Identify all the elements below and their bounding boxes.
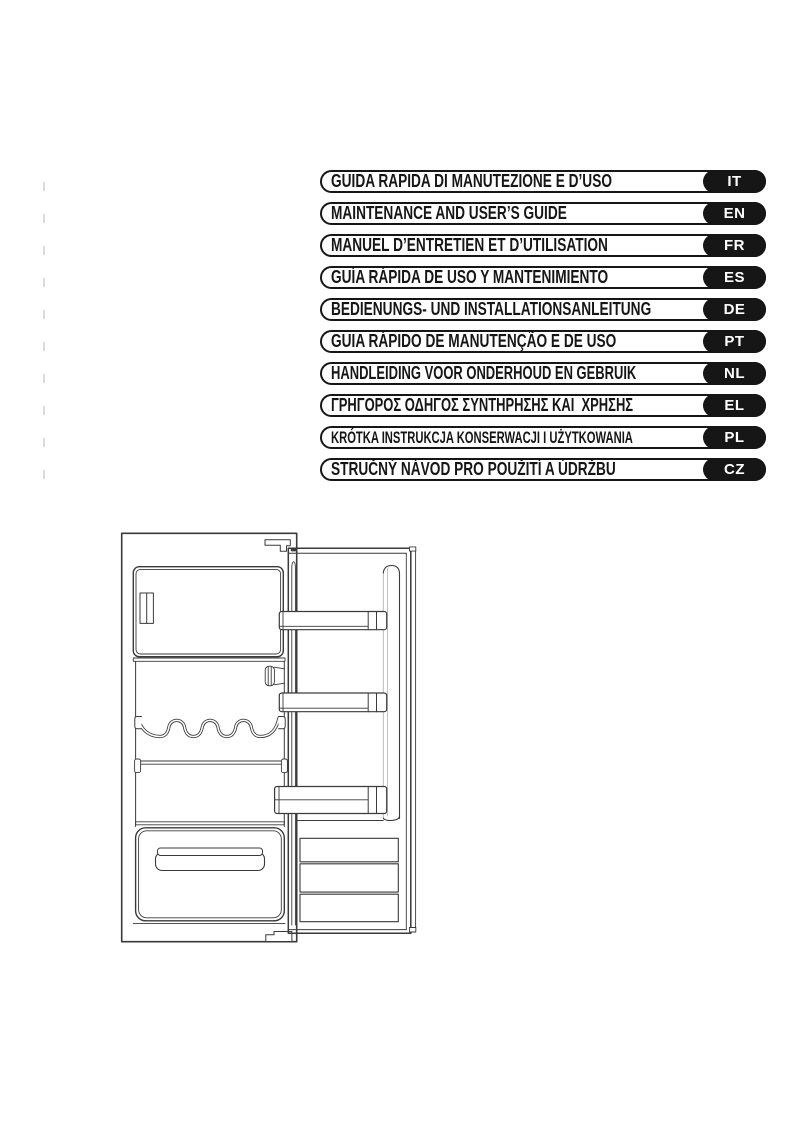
language-badge: DE [703,298,766,321]
banner-title: GUIDA RAPIDA DI MANUTEZIONE E D’USO [331,171,612,192]
banner-row-es: GUÍA RÁPIDA DE USO Y MANTENIMIENTO ES [320,266,766,289]
banner-title: GUIA RÁPIDO DE MANUTENÇÃO E DE USO [331,331,616,352]
language-badge: IT [703,170,766,193]
language-badge: PT [703,330,766,353]
crisper-cover-shelf [136,822,285,825]
middle-shelf [135,759,288,773]
rack-bracket-left [135,717,142,729]
banner-title: MANUEL D’ENTRETIEN ET D’UTILISATION [331,235,608,256]
banner-title: HANDLEIDING VOOR ONDERHOUD EN GEBRUIK [331,363,636,384]
banner-row-cz: STRUČNÝ NÁVOD PRO POUŽITÍ A ÚDRŽBU CZ [320,458,766,481]
banner-title: ΓΡΗΓΟΡΟΣ ΟΔΗΓΟΣ ΣΥΝΤΗΡΗΣΗΣ ΚΑΙ ΧΡΗΣΗΣ [331,395,633,416]
banner-row-fr: MANUEL D’ENTRETIEN ET D’UTILISATION FR [320,234,766,257]
tick-mark [43,182,45,191]
crisper-handle [156,848,265,871]
freezer-handle [140,593,153,623]
language-badge: CZ [703,458,766,481]
banner-title: MAINTENANCE AND USER’S GUIDE [331,203,567,224]
banner-row-de: BEDIENUNGS- UND INSTALLATIONSANLEITUNG D… [320,298,766,321]
language-badge: FR [703,234,766,257]
refrigerator-illustration [100,515,450,965]
banner-title: STRUČNÝ NÁVOD PRO POUŽITÍ A ÚDRŽBU [331,459,616,480]
rack-bracket-right [279,717,286,729]
tick-mark [43,374,45,383]
banner-row-el: ΓΡΗΓΟΡΟΣ ΟΔΗΓΟΣ ΣΥΝΤΗΡΗΣΗΣ ΚΑΙ ΧΡΗΣΗΣ EL [320,394,766,417]
tick-mark [43,342,45,351]
tick-mark [43,406,45,415]
banner-list: GUIDA RAPIDA DI MANUTEZIONE E D’USO IT M… [320,170,766,490]
banner-row-pl: KRÓTKA INSTRUKCJA KONSERWACJI I UŻYTKOWA… [320,426,766,449]
banner-row-en: MAINTENANCE AND USER’S GUIDE EN [320,202,766,225]
crisper-drawer [136,828,285,921]
tick-mark [43,310,45,319]
banner-row-nl: HANDLEIDING VOOR ONDERHOUD EN GEBRUIK NL [320,362,766,385]
freezer-bottom-shelf [133,658,285,661]
thermostat-knob [265,666,284,686]
door-lower-panel [300,838,398,921]
tick-mark [43,214,45,223]
tick-mark [43,246,45,255]
door-edge-strip [410,547,416,932]
tick-mark [43,278,45,287]
fridge-door [275,547,416,933]
language-badge: ES [703,266,766,289]
tick-mark [43,470,45,479]
top-hinge-cover [265,540,296,552]
bottle-rack [135,717,285,737]
language-badge: NL [703,362,766,385]
page-root: { "page": { "background": "#ffffff" }, "… [0,0,802,1134]
door-bin-top [279,612,386,630]
language-badge: PL [703,426,766,449]
banner-row-it: GUIDA RAPIDA DI MANUTEZIONE E D’USO IT [320,170,766,193]
door-bin-bottom [275,787,387,814]
banner-title: GUÍA RÁPIDA DE USO Y MANTENIMIENTO [331,267,608,288]
freezer-door [133,567,283,657]
language-badge: EN [703,202,766,225]
banner-row-pt: GUIA RÁPIDO DE MANUTENÇÃO E DE USO PT [320,330,766,353]
banner-title: BEDIENUNGS- UND INSTALLATIONSANLEITUNG [331,299,651,320]
tick-mark [43,438,45,447]
banner-title: KRÓTKA INSTRUKCJA KONSERWACJI I UŻYTKOWA… [331,428,633,448]
door-bin-middle [279,693,386,712]
language-badge: EL [703,394,766,417]
cabinet-interior-walls [133,662,285,924]
